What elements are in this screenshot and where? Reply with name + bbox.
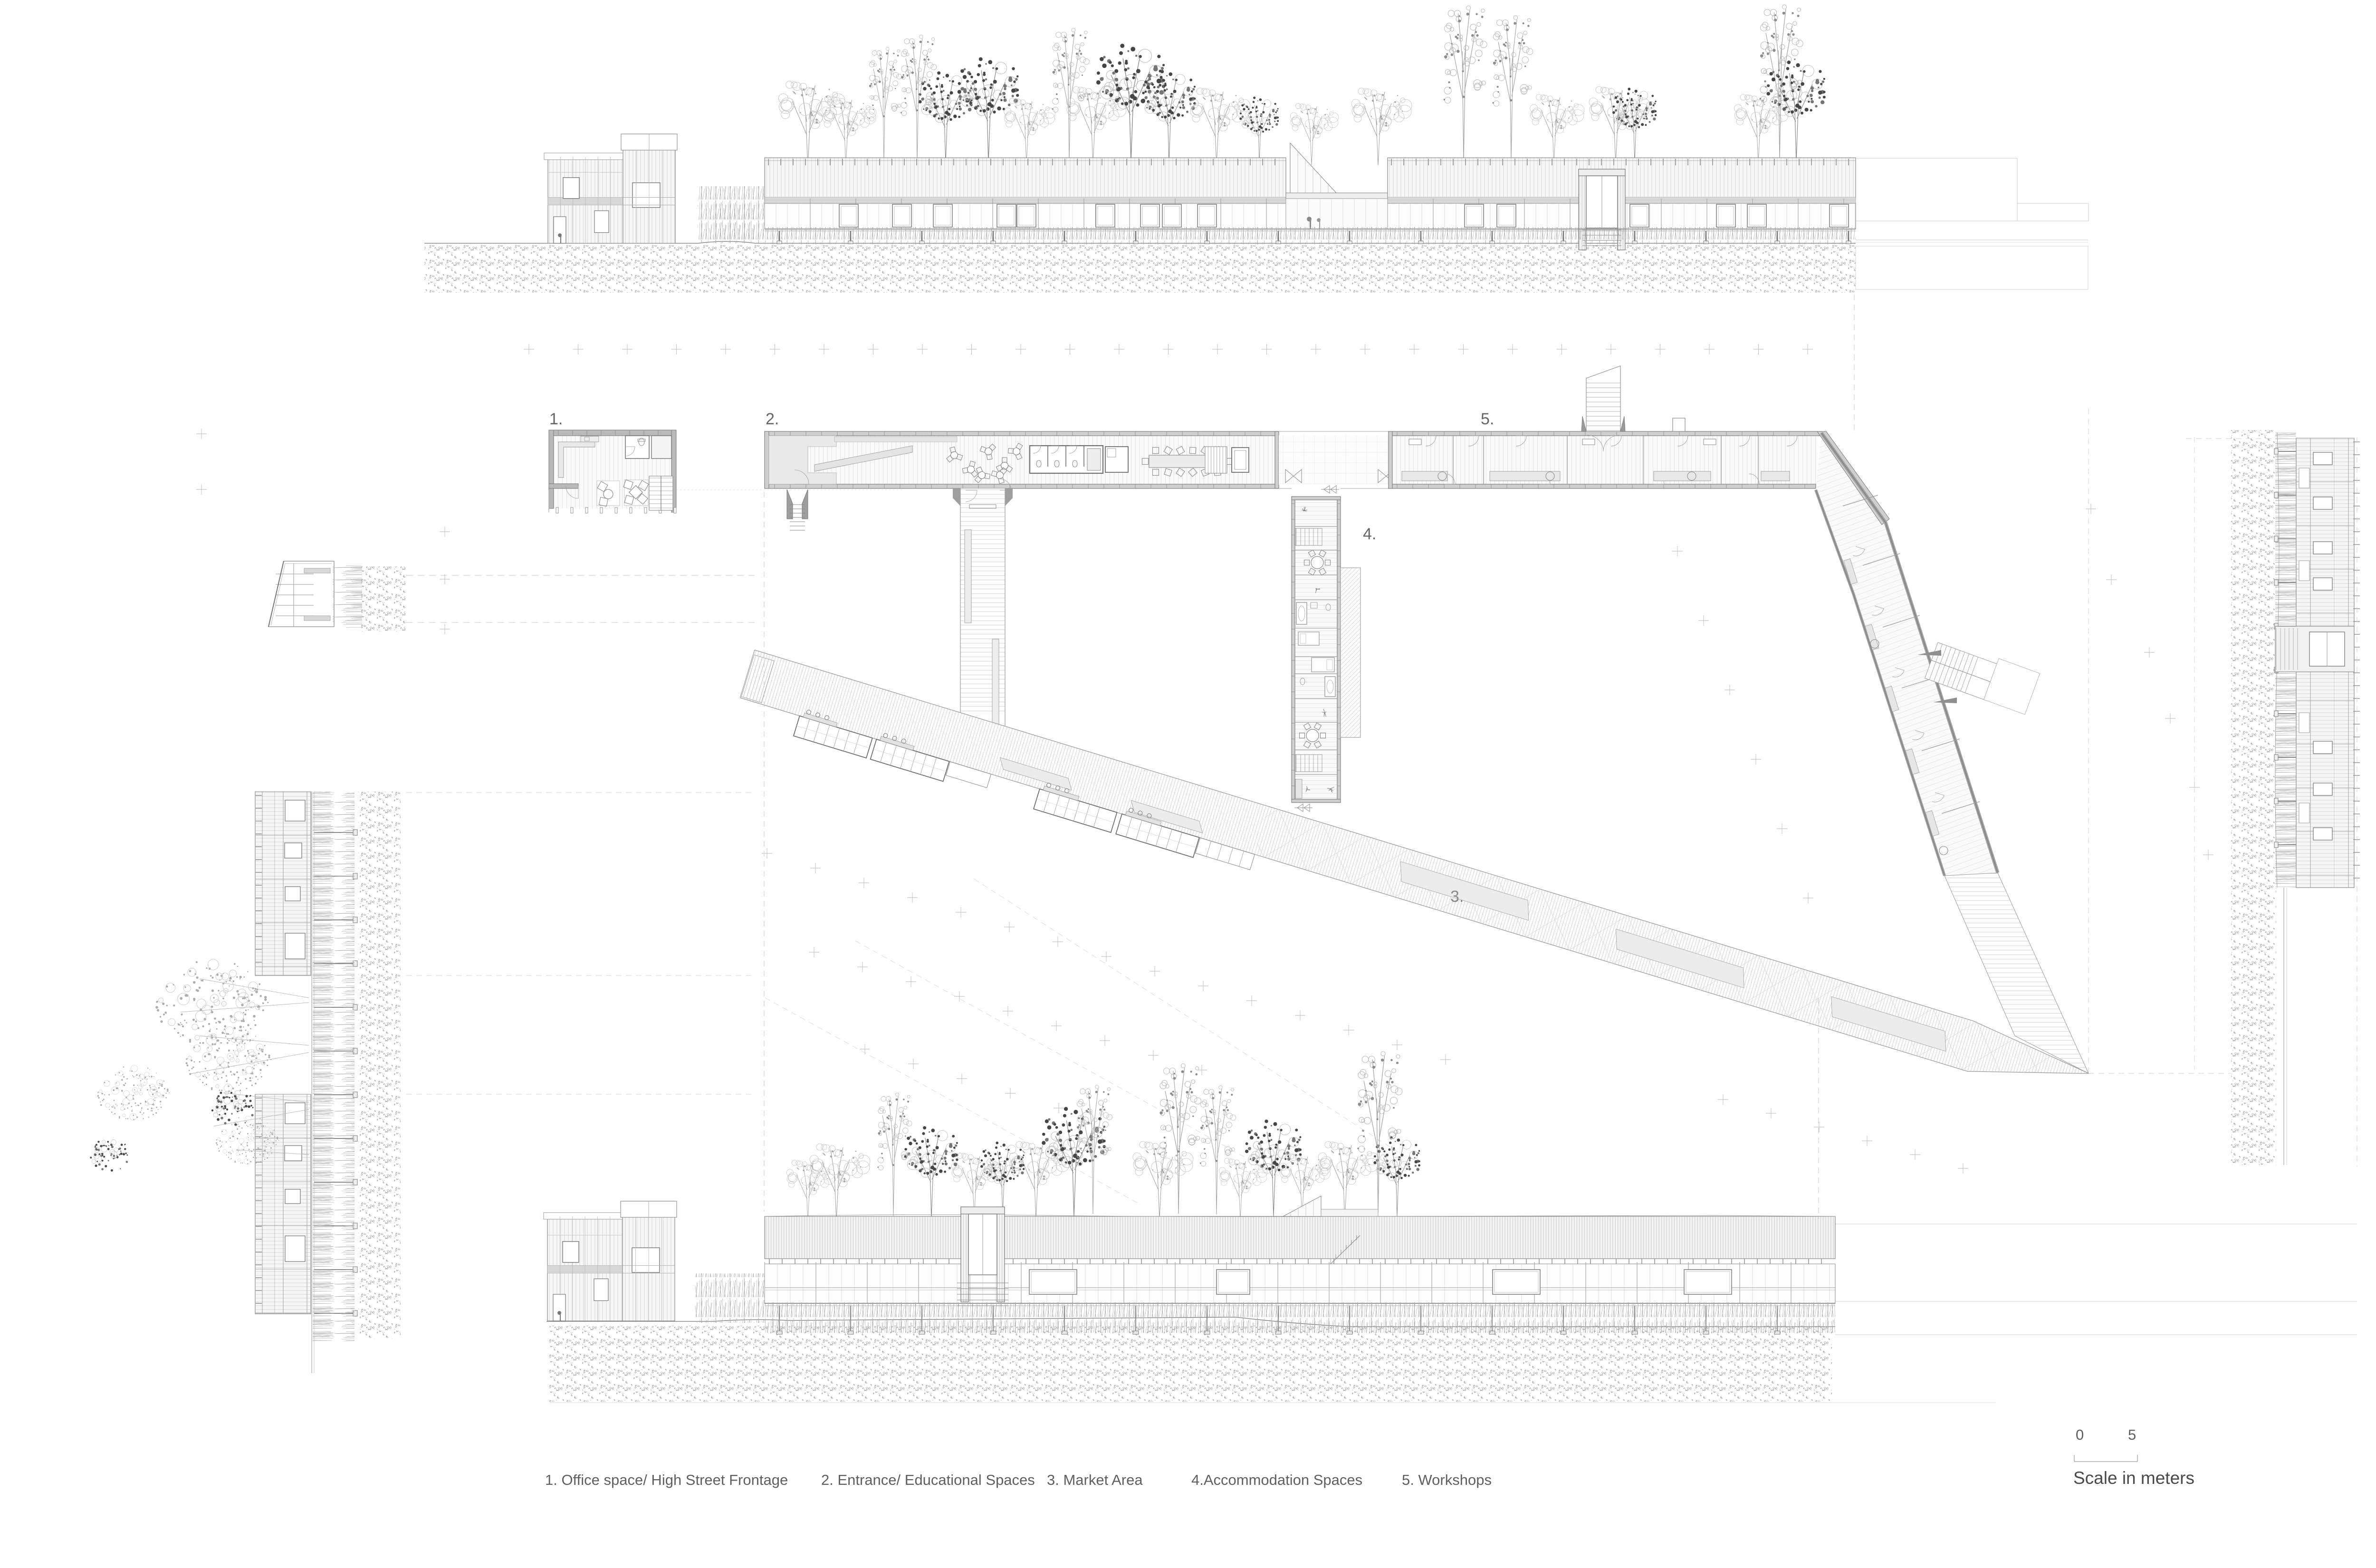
svg-text:3. Market Area: 3. Market Area bbox=[1047, 1472, 1143, 1488]
svg-text:1.: 1. bbox=[549, 410, 563, 428]
svg-text:5.: 5. bbox=[1481, 410, 1494, 428]
svg-text:4.: 4. bbox=[1363, 525, 1376, 543]
svg-text:1. Office space/ High Street F: 1. Office space/ High Street Frontage bbox=[545, 1472, 788, 1488]
svg-text:2.: 2. bbox=[766, 410, 779, 428]
svg-text:3.: 3. bbox=[1450, 888, 1464, 906]
svg-text:5: 5 bbox=[2128, 1426, 2136, 1443]
svg-text:5. Workshops: 5. Workshops bbox=[1402, 1472, 1492, 1488]
svg-text:4.Accommodation Spaces: 4.Accommodation Spaces bbox=[1191, 1472, 1362, 1488]
svg-text:0: 0 bbox=[2076, 1426, 2084, 1443]
svg-text:2. Entrance/ Educational Space: 2. Entrance/ Educational Spaces bbox=[821, 1472, 1035, 1488]
svg-text:Scale in meters: Scale in meters bbox=[2073, 1468, 2194, 1488]
